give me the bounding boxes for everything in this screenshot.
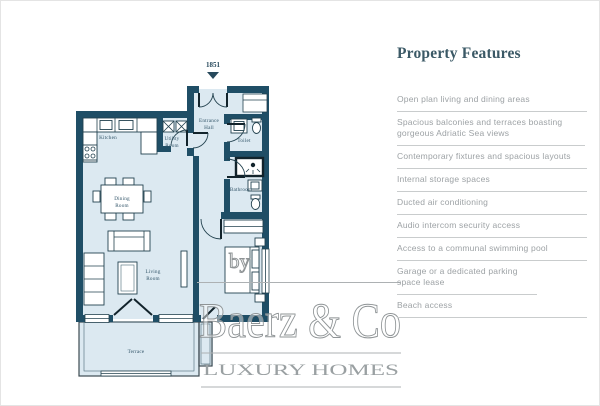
room-label-living-1: Living (145, 269, 160, 275)
feature-item: Beach access (397, 295, 587, 318)
room-label-bathroom: Bathroom (230, 187, 252, 193)
unit-number-label: 1851 (206, 61, 221, 69)
room-label-living-2: Room (146, 276, 159, 282)
entry-arrow-icon (207, 72, 219, 79)
watermark-by: by (229, 249, 251, 273)
room-label-utility-1: Utility (165, 136, 180, 142)
features-list: Open plan living and dining areas Spacio… (397, 89, 587, 318)
feature-item: Contemporary fixtures and spacious layou… (397, 146, 587, 169)
toilet-fixtures (231, 118, 261, 134)
room-label-dining-2: Room (115, 203, 128, 209)
room-label-terrace: Terrace (128, 349, 145, 355)
room-label-utility-2: Room (165, 143, 178, 149)
room-label-entrance-1: Entrance (199, 118, 220, 124)
features-title: Property Features (397, 45, 587, 63)
feature-item: Access to a communal swimming pool (397, 238, 587, 261)
room-label-dining-1: Dining (114, 196, 130, 202)
feature-item: Ducted air conditioning (397, 192, 587, 215)
property-features-panel: Property Features Open plan living and d… (397, 45, 587, 318)
feature-item: Garage or a dedicated parking space leas… (397, 261, 537, 295)
feature-item: Spacious balconies and terraces boasting… (397, 112, 585, 146)
room-label-entrance-2: Hall (204, 125, 214, 131)
watermark-tagline: LUXURY HOMES (203, 362, 399, 379)
listing-image: 1851 Kitchen Utility Room Entrance Hall … (0, 0, 600, 406)
room-label-toilet: Toilet (237, 138, 251, 144)
watermark-brand: Baerz & Co (199, 292, 401, 348)
feature-item: Internal storage spaces (397, 169, 587, 192)
feature-item: Audio intercom security access (397, 215, 587, 238)
feature-item: Open plan living and dining areas (397, 89, 587, 112)
room-label-kitchen: Kitchen (99, 135, 117, 141)
